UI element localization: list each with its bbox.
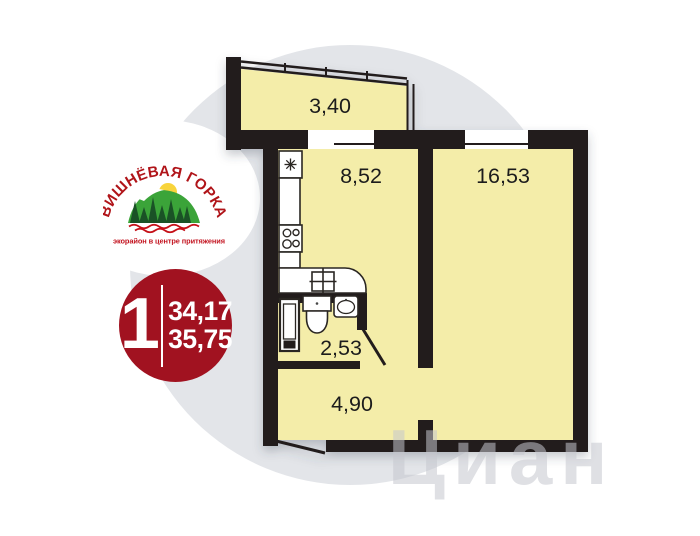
toilet-bowl-icon xyxy=(307,311,328,333)
kitchen-counter-mid xyxy=(279,252,300,268)
living-room-window xyxy=(465,130,528,149)
area-primary: 34,17 xyxy=(168,298,232,325)
living-room-area-label: 16,53 xyxy=(476,164,530,188)
kitchen-window xyxy=(334,130,374,149)
bathroom-area-label: 2,53 xyxy=(320,336,362,360)
top-wall xyxy=(226,130,588,149)
rooms-count: 1 xyxy=(119,288,161,360)
snowflake-icon xyxy=(285,159,297,171)
waves-icon xyxy=(129,225,199,233)
balcony-door-opening xyxy=(308,130,334,149)
logo-tagline: экорайон в центре притяжения xyxy=(113,237,225,246)
kitchen-area-label: 8,52 xyxy=(340,164,382,188)
divider-wall-upper xyxy=(418,149,433,368)
right-wall xyxy=(573,130,588,452)
stove-icon xyxy=(279,225,302,252)
balcony-area-label: 3,40 xyxy=(309,94,351,118)
badge-areas: 34,17 35,75 xyxy=(163,298,232,352)
watermark: Циан xyxy=(388,412,615,503)
developer-logo: ВИШНЁВАЯ ГОРКА экорайон в центре притяже… xyxy=(103,148,233,252)
area-badge: 1 34,17 35,75 xyxy=(119,269,232,382)
area-secondary: 35,75 xyxy=(168,326,232,353)
left-wall xyxy=(263,149,278,446)
entrance-door-leaf xyxy=(276,441,325,453)
bathroom-bottom-wall xyxy=(278,361,360,369)
hallway-area-label: 4,90 xyxy=(331,392,373,416)
kitchen-counter-top xyxy=(279,178,300,225)
floorplan-card: 3,40 8,52 16,53 2,53 4,90 Циан xyxy=(0,0,700,536)
